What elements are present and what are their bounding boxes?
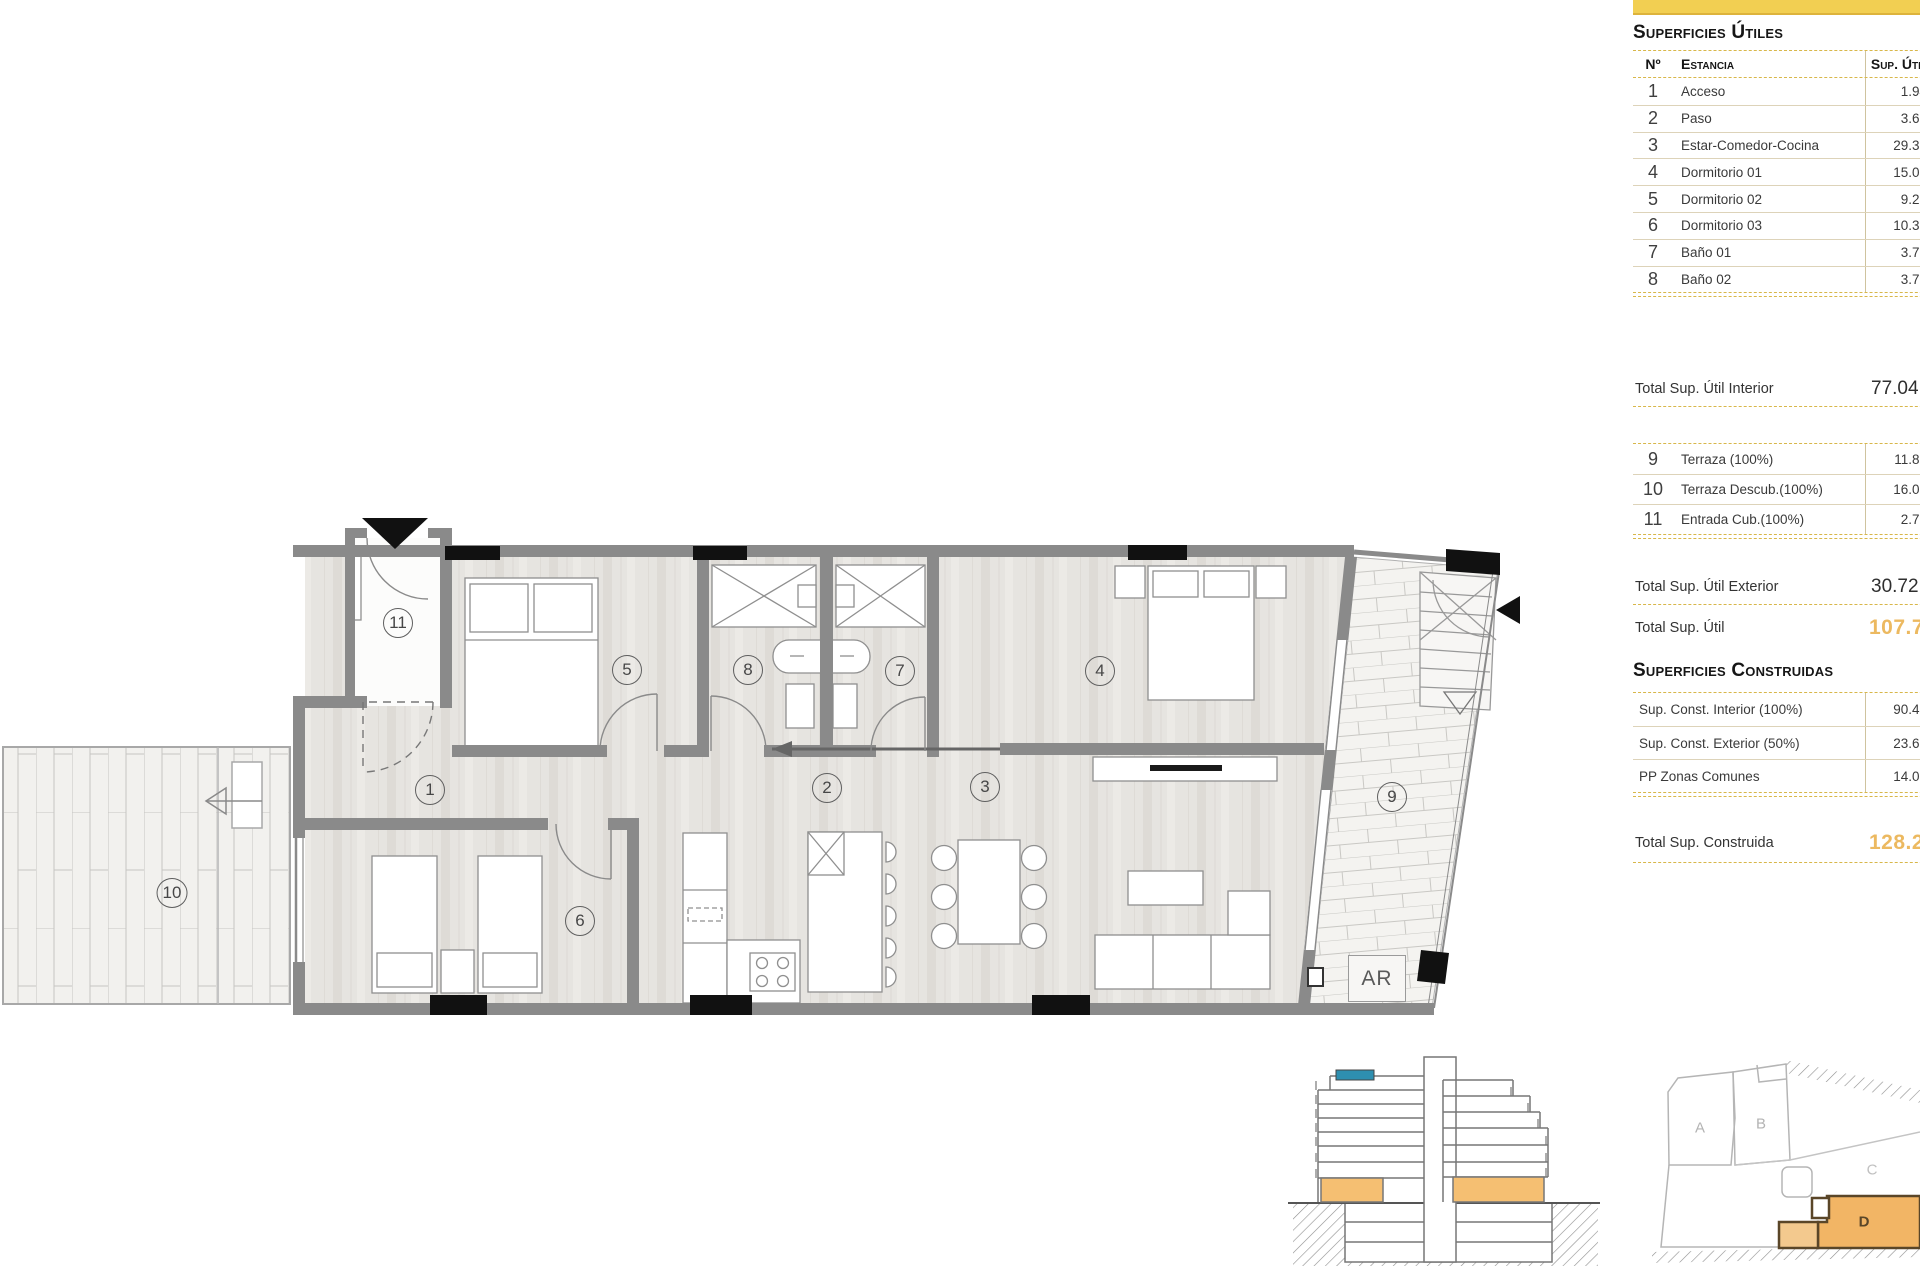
yellow-accent-bar	[1633, 0, 1920, 15]
table-row: Sup. Const. Interior (100%) 90.48	[1633, 693, 1920, 726]
table-row: 7 Baño 01 3.71	[1633, 239, 1920, 266]
table-row: 5 Dormitorio 02 9.29	[1633, 185, 1920, 212]
table-row: Sup. Const. Exterior (50%) 23.68	[1633, 726, 1920, 759]
table-row: 2 Paso 3.67	[1633, 105, 1920, 132]
table-bottom-rule	[1633, 292, 1920, 297]
superficies-construidas-title: Superficies Construidas	[1633, 660, 1833, 682]
room-number-label: 6	[565, 906, 595, 936]
table-header-row: Nº Estancia Sup. Útil	[1633, 51, 1920, 78]
room-number-label: 11	[383, 608, 413, 638]
ar-door	[1308, 968, 1323, 986]
total-sup-util-interior: Total Sup. Útil Interior 77.04	[1633, 372, 1920, 407]
col-header-no: Nº	[1633, 56, 1673, 72]
surfaces-panel: Superficies Útiles Nº Estancia Sup. Útil…	[1633, 0, 1920, 1280]
total-sup-util-exterior: Total Sup. Útil Exterior 30.72	[1633, 570, 1920, 605]
page: 1 2 3 4 5 6 7 8 9 10 11 AR A B C	[0, 0, 1920, 1280]
table-row: 4 Dormitorio 01 15.03	[1633, 158, 1920, 185]
room-number-label: 1	[415, 775, 445, 805]
table-row: 6 Dormitorio 03 10.30	[1633, 212, 1920, 239]
table-row: 1 Acceso 1.94	[1633, 78, 1920, 105]
col-header-estancia: Estancia	[1673, 56, 1865, 72]
room-number-label: 4	[1085, 656, 1115, 686]
total-sup-construida: Total Sup. Construida 128.2	[1633, 824, 1920, 863]
table-bottom-rule	[1633, 792, 1920, 797]
table-row: 8 Baño 02 3.71	[1633, 266, 1920, 293]
table-row: 9 Terraza (100%) 11.88	[1633, 444, 1920, 474]
construidas-table: Sup. Const. Interior (100%) 90.48 Sup. C…	[1633, 692, 1920, 797]
superficies-utiles-table: Nº Estancia Sup. Útil 1 Acceso 1.94 2 Pa…	[1633, 50, 1920, 297]
room-number-label: 2	[812, 773, 842, 803]
room-number-label: 5	[612, 655, 642, 685]
room-number-label: 10	[157, 878, 188, 908]
superficies-utiles-title: Superficies Útiles	[1633, 22, 1783, 44]
room-number-label: 8	[733, 655, 763, 685]
total-sup-util: Total Sup. Útil 107.7	[1633, 610, 1920, 646]
table-row: 3 Estar-Comedor-Cocina 29.39	[1633, 132, 1920, 159]
room-number-label: 9	[1377, 782, 1407, 812]
building-section	[1288, 1057, 1600, 1266]
storage-room-label: AR	[1348, 955, 1406, 1002]
room-number-label: 7	[885, 656, 915, 686]
table-row: 11 Entrada Cub.(100%) 2.76	[1633, 504, 1920, 534]
terrace-10	[3, 747, 290, 1004]
col-header-sup-util: Sup. Útil	[1865, 51, 1920, 77]
floor-plan-drawing	[0, 0, 1920, 1280]
table-row: PP Zonas Comunes 14.05	[1633, 759, 1920, 792]
table-row: 10 Terraza Descub.(100%) 16.08	[1633, 474, 1920, 504]
room-number-label: 3	[970, 772, 1000, 802]
table-bottom-rule	[1633, 534, 1920, 539]
exterior-table: 9 Terraza (100%) 11.88 10 Terraza Descub…	[1633, 443, 1920, 539]
